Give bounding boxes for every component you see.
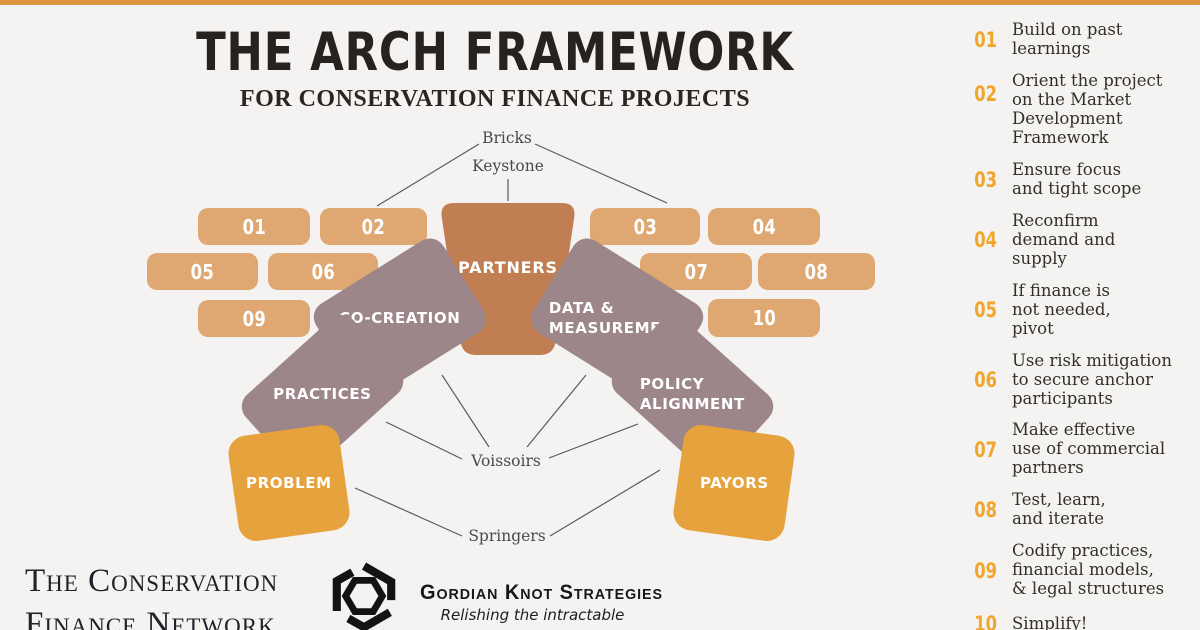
step-06-text: Use risk mitigation to secure anchor par… (1012, 352, 1172, 409)
step-07-number: 07 (970, 438, 1002, 462)
step-item-01: 01 Build on past learnings (970, 21, 1200, 59)
step-item-10: 10 Simplify! (970, 612, 1200, 630)
step-05-number: 05 (970, 298, 1002, 322)
gks-tagline: Relishing the intractable (420, 606, 645, 624)
step-02-text: Orient the project on the Market Develop… (1012, 72, 1162, 148)
brick-02: 02 (320, 208, 427, 245)
infographic-canvas: THE ARCH FRAMEWORK FOR CONSERVATION FINA… (0, 0, 1200, 630)
hexagon-knot-icon (330, 556, 398, 630)
step-item-02: 02 Orient the project on the Market Deve… (970, 72, 1200, 148)
gks-text: Gordian Knot Strategies Relishing the in… (420, 581, 645, 630)
gks-name: Gordian Knot Strategies (420, 581, 634, 605)
label-voissoirs: Voissoirs (450, 452, 562, 470)
stone-partners-label: PARTNERS (446, 258, 570, 277)
step-06-number: 06 (970, 368, 1002, 392)
step-09-number: 09 (970, 559, 1002, 583)
step-05-text: If finance is not needed, pivot (1012, 282, 1111, 339)
step-01-text: Build on past learnings (1012, 21, 1122, 59)
step-04-number: 04 (970, 228, 1002, 252)
brick-04: 04 (708, 208, 820, 245)
brick-04-label: 04 (752, 215, 776, 239)
stone-payors-label: PAYORS (700, 473, 769, 493)
step-03-text: Ensure focus and tight scope (1012, 161, 1141, 199)
cfn-line1: The Conservation (25, 560, 278, 603)
step-10-number: 10 (970, 612, 1002, 630)
arch-diagram: 01 02 03 04 05 06 07 08 09 10 PARTNERS (0, 0, 960, 630)
brick-09: 09 (198, 300, 310, 337)
stone-practices-label: PRACTICES (273, 384, 371, 404)
step-04-text: Reconfirm demand and supply (1012, 212, 1115, 269)
step-item-08: 08 Test, learn, and iterate (970, 491, 1200, 529)
stone-problem: PROBLEM (226, 423, 352, 544)
brick-01-label: 01 (242, 215, 266, 239)
brick-07-label: 07 (684, 260, 708, 284)
label-keystone: Keystone (450, 157, 566, 175)
step-07-text: Make effective use of commercial partner… (1012, 421, 1165, 478)
step-item-03: 03 Ensure focus and tight scope (970, 161, 1200, 199)
stone-policy-alignment-label: POLICY ALIGNMENT (640, 374, 745, 415)
step-10-text: Simplify! (1012, 615, 1087, 630)
brick-09-label: 09 (242, 307, 266, 331)
brick-10: 10 (708, 299, 820, 337)
step-02-number: 02 (970, 82, 1002, 106)
brick-08: 08 (758, 253, 875, 290)
cfn-line2: Finance Network (25, 603, 278, 630)
step-item-09: 09 Codify practices, financial models, &… (970, 542, 1200, 599)
step-09-text: Codify practices, financial models, & le… (1012, 542, 1164, 599)
brick-01: 01 (198, 208, 310, 245)
step-item-06: 06 Use risk mitigation to secure anchor … (970, 352, 1200, 409)
brick-10-label: 10 (752, 306, 776, 330)
step-item-04: 04 Reconfirm demand and supply (970, 212, 1200, 269)
brick-03-label: 03 (633, 215, 657, 239)
step-01-number: 01 (970, 28, 1002, 52)
stone-payors: PAYORS (671, 423, 797, 544)
brick-06-label: 06 (311, 260, 335, 284)
conservation-finance-network-logo: The Conservation Finance Network (25, 560, 278, 630)
steps-sidebar: 01 Build on past learnings 02 Orient the… (958, 0, 1200, 630)
step-item-05: 05 If finance is not needed, pivot (970, 282, 1200, 339)
label-bricks: Bricks (455, 129, 559, 147)
brick-05-label: 05 (191, 260, 215, 284)
brick-08-label: 08 (805, 260, 829, 284)
step-08-number: 08 (970, 498, 1002, 522)
gordian-knot-strategies-logo: Gordian Knot Strategies Relishing the in… (330, 556, 645, 630)
label-springers: Springers (450, 527, 564, 545)
brick-02-label: 02 (362, 215, 386, 239)
stone-problem-label: PROBLEM (246, 473, 332, 493)
step-03-number: 03 (970, 168, 1002, 192)
step-08-text: Test, learn, and iterate (1012, 491, 1106, 529)
brick-03: 03 (590, 208, 700, 245)
brick-05: 05 (147, 253, 258, 290)
step-item-07: 07 Make effective use of commercial part… (970, 421, 1200, 478)
